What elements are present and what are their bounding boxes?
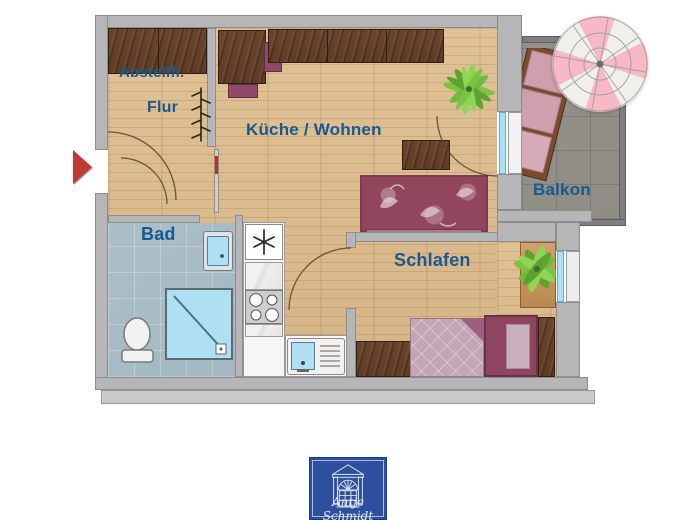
wall-bedroom-top — [350, 232, 498, 242]
wall-left-lower — [95, 193, 108, 390]
desk-chair-seat — [228, 84, 258, 98]
nightstand — [538, 317, 555, 377]
wall-bedroom-divider — [346, 308, 356, 377]
wall-hall-divider — [207, 28, 216, 147]
balcony-door-frame — [508, 112, 522, 174]
sideboard — [268, 29, 444, 63]
room-label-bad: Bad — [141, 224, 176, 245]
room-label-schlafen: Schlafen — [394, 250, 471, 271]
wall-bottom-step — [101, 390, 595, 404]
stove-burners-icon — [245, 290, 283, 324]
bedroom-window-sill — [566, 251, 580, 302]
duvet-fold — [460, 318, 484, 342]
sideboard-divider-1 — [327, 29, 328, 63]
wall-bottom — [95, 377, 588, 390]
parasol-ribs-icon — [544, 8, 655, 119]
wall-right-mid — [497, 174, 522, 210]
room-label-balkon: Balkon — [533, 180, 591, 200]
toilet-icon — [118, 314, 160, 366]
wall-bath-top — [108, 215, 200, 223]
room-label-abstellfl: Abstellfl. — [119, 64, 184, 81]
agency-logo: Antje Schmidt — [309, 457, 387, 520]
entrance-arrow-icon — [73, 150, 92, 184]
kitchen-sink-details-icon — [287, 338, 345, 375]
door-handle-mark — [215, 156, 218, 174]
room-label-flur: Flur — [147, 99, 178, 117]
lamp-symbol-icon — [251, 229, 277, 255]
coffee-table — [402, 140, 450, 170]
sideboard-divider-2 — [386, 29, 387, 63]
floorplan-canvas: Abstellfl. Flur Küche / Wohnen Bad Schla… — [0, 0, 693, 520]
kitchen-worktop-2 — [245, 324, 283, 337]
balcony-door-glass — [499, 112, 506, 174]
wall-bedroom-top-right — [497, 222, 556, 242]
logo-script-text: Antje Schmidt — [309, 495, 387, 520]
wall-under-balcony — [497, 210, 592, 222]
desk — [218, 30, 266, 84]
wall-bedroom-right-lower — [556, 302, 580, 377]
bed-pillow — [506, 324, 530, 369]
kitchen-worktop-1 — [245, 262, 283, 290]
room-label-kueche-wohnen: Küche / Wohnen — [246, 120, 382, 140]
wall-bedroom-right-upper — [556, 222, 580, 251]
bath-sink-drain-icon — [207, 236, 229, 266]
bedroom-window-glass — [557, 251, 564, 302]
shower-details-icon — [165, 288, 233, 360]
sofa-floral-pattern — [360, 175, 488, 232]
plant-icon — [438, 58, 500, 120]
wall-bath-right — [235, 215, 243, 377]
wall-top — [95, 15, 522, 28]
wall-left-upper — [95, 15, 108, 150]
wall-right-upper — [497, 15, 522, 112]
wall-bedroom-divider-nub — [346, 232, 356, 248]
bedroom-sideboard — [356, 341, 413, 377]
